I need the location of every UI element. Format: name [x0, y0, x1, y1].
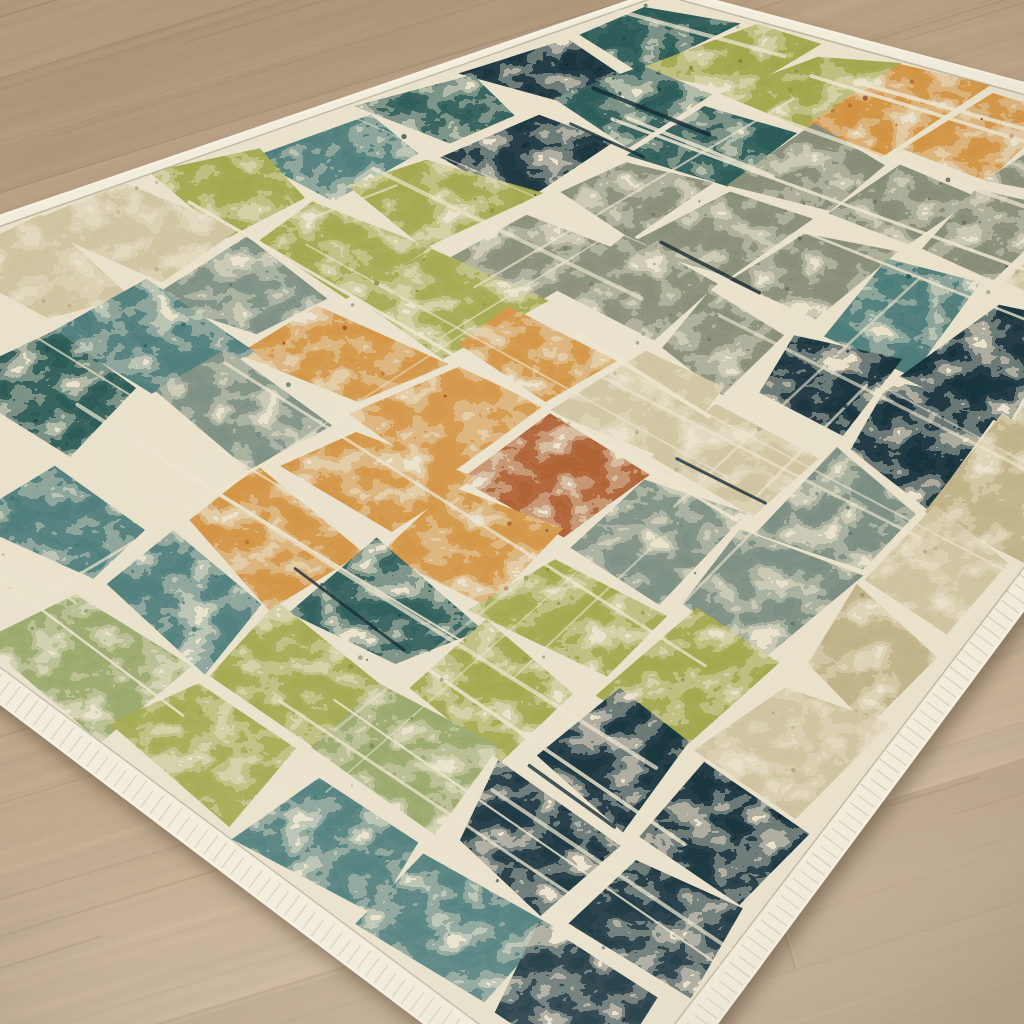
scene-svg — [0, 0, 1024, 1024]
scene-vignette — [0, 0, 1024, 1024]
rug-product-photo — [0, 0, 1024, 1024]
